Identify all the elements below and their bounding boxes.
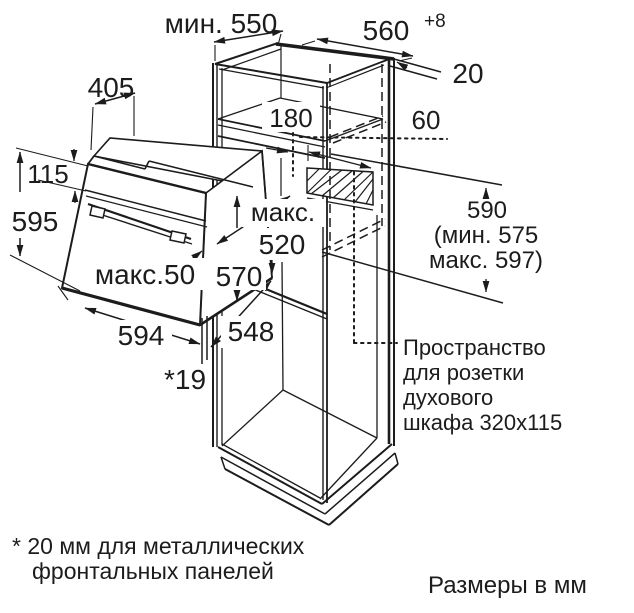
dim-front-height-595: 595	[12, 206, 59, 237]
dim-body-depth-520: 520	[259, 229, 306, 260]
dim-niche-height-min: (мин. 575	[434, 222, 539, 249]
dim-vent-offset-60: 60	[412, 105, 441, 135]
socket-note-line3: духового	[403, 385, 493, 410]
dim-rear-gap-20: 20	[452, 58, 483, 89]
dim-niche-width-tolerance: +8	[424, 11, 446, 32]
oven-drawing	[62, 138, 272, 325]
dim-max-protrusion-50: макс.50	[95, 259, 195, 290]
socket-note-line1: Пространство	[403, 335, 546, 360]
dim-top-depth-405: 405	[88, 72, 135, 103]
dim-front-width-594: 594	[118, 320, 165, 351]
footnote-line2: фронтальных панелей	[32, 558, 274, 584]
dim-frame-overhang-19: *19	[164, 364, 206, 395]
dim-panel-height-115: 115	[27, 159, 68, 189]
socket-note-line2: для розетки	[403, 360, 524, 385]
oven-installation-diagram: мин. 550 560 +8 20 405 180 60 115 595 ма…	[0, 0, 634, 613]
dim-niche-width-560: 560	[363, 15, 410, 46]
dim-vent-offset-180: 180	[269, 103, 312, 133]
socket-note: Пространство для розетки духового шкафа …	[403, 335, 562, 435]
installation-drawing: мин. 550 560 +8 20 405 180 60 115 595 ма…	[0, 0, 634, 613]
footnote-line1: * 20 мм для металлических	[12, 533, 305, 559]
footnote: * 20 мм для металлических фронтальных па…	[12, 533, 305, 584]
dim-max-label: макс.	[251, 197, 315, 227]
socket-note-line4: шкафа 320x115	[403, 410, 562, 435]
dim-niche-height-590: 590	[467, 197, 507, 224]
dim-body-width-548: 548	[228, 316, 275, 347]
dim-niche-height-max: макс. 597)	[429, 247, 543, 274]
dim-body-height-570: 570	[216, 261, 263, 292]
dim-min-depth-550: мин. 550	[165, 8, 278, 39]
units-note: Размеры в мм	[428, 572, 587, 599]
